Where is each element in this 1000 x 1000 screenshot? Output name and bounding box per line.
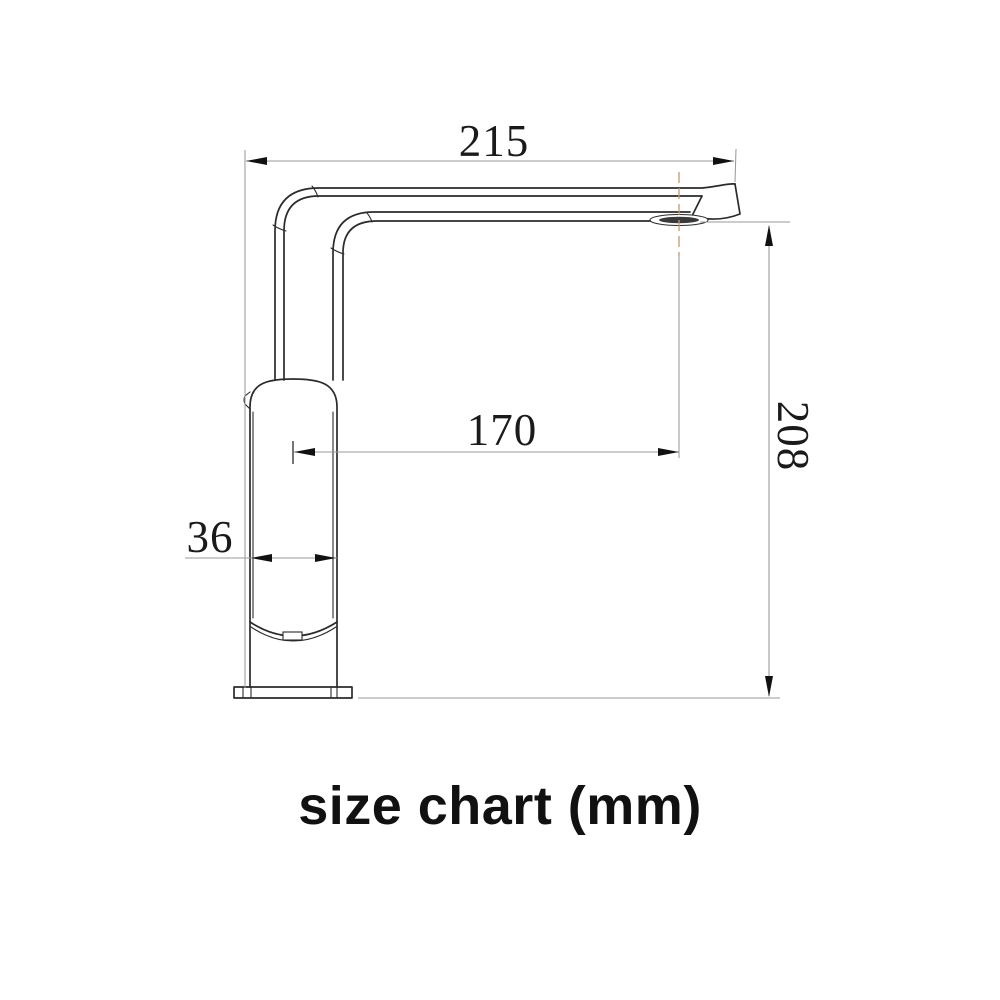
- dim-label-170: 170: [467, 405, 538, 455]
- arrowhead-down-icon: [765, 676, 773, 697]
- bend-break-line: [366, 212, 372, 222]
- arrowhead-right-icon: [713, 157, 734, 165]
- base-plate: [234, 687, 352, 698]
- dim-label-215: 215: [459, 116, 530, 166]
- dim-label-208: 208: [768, 401, 818, 472]
- dimension-overall-height: 208: [700, 222, 818, 697]
- arrowhead-left-icon: [246, 157, 267, 165]
- dimension-body-width: 36: [185, 512, 337, 562]
- arrowhead-left-icon: [294, 448, 315, 456]
- extension-line-right: [735, 149, 736, 182]
- dimension-outlet-offset: 170: [293, 256, 679, 464]
- arrowhead-left-icon: [251, 554, 272, 562]
- arrowhead-right-icon: [658, 448, 679, 456]
- arrowhead-up-icon: [765, 225, 773, 246]
- handle-detail: [283, 632, 302, 640]
- rear-tube-inner-edge: [343, 221, 655, 380]
- faucet-drawing: 215 170 36 208 size chart (mm): [0, 0, 1000, 1000]
- spout-inner-edge: [284, 196, 702, 380]
- size-chart-diagram: 215 170 36 208 size chart (mm): [0, 0, 1000, 1000]
- dim-label-36: 36: [187, 512, 234, 562]
- dimension-overall-reach: 215: [245, 116, 736, 688]
- rear-tube-outer-edge: [333, 212, 690, 380]
- diagram-caption: size chart (mm): [298, 776, 702, 836]
- spout-outer-edge: [275, 184, 735, 380]
- spout-head: [692, 184, 740, 219]
